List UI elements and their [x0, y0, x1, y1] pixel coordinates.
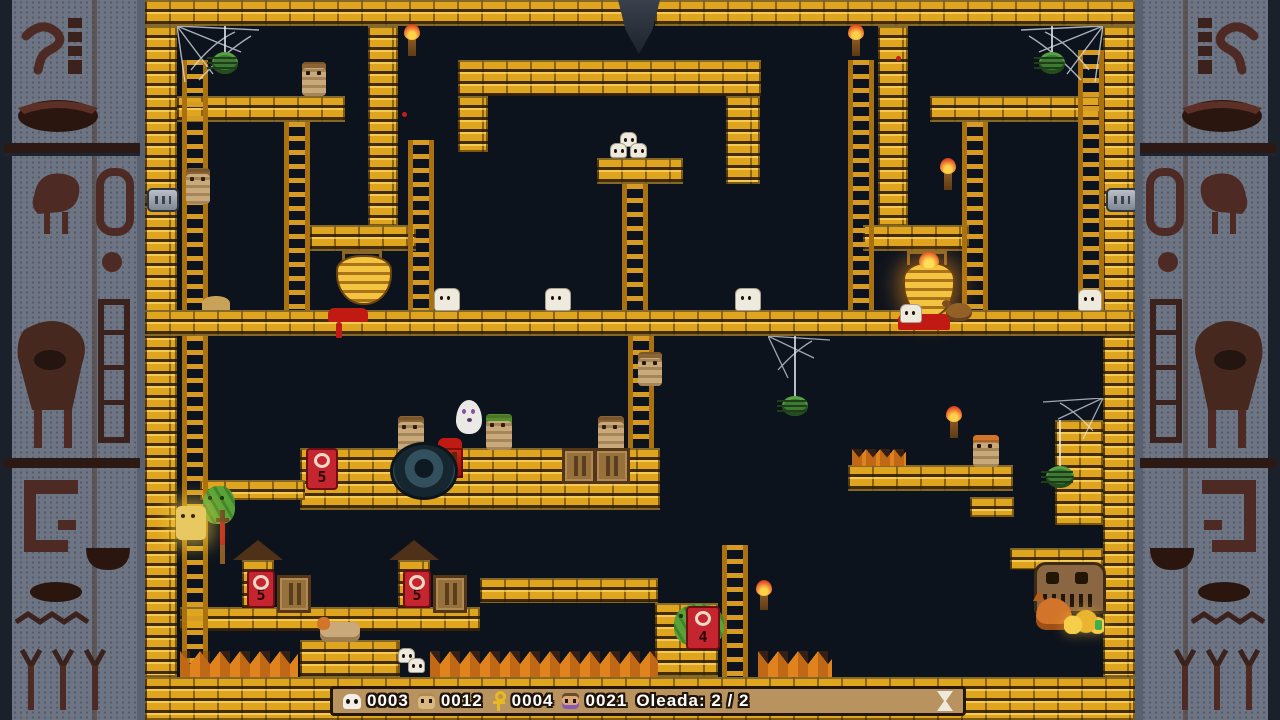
hud-villager-counter: 0021	[562, 691, 627, 711]
web-thread	[1059, 420, 1061, 468]
hieroglyph-border-right	[1135, 0, 1280, 720]
wave-label: Oleada: 2 / 2	[636, 691, 749, 711]
crate	[433, 575, 467, 613]
green-hat-hero	[486, 414, 512, 450]
torch	[944, 172, 952, 190]
villager-icon	[562, 693, 579, 709]
mummy	[638, 352, 662, 386]
skull	[610, 143, 627, 158]
crate	[594, 448, 630, 484]
mummy	[598, 416, 624, 452]
tower-column-right	[878, 26, 908, 226]
ceiling-left	[145, 0, 628, 26]
blood-pool	[328, 308, 368, 322]
wall-lever[interactable]	[147, 188, 179, 212]
spike-trap	[758, 651, 832, 677]
wall-left	[145, 26, 177, 677]
spider	[212, 52, 238, 74]
web-thread	[224, 26, 226, 54]
spider	[1046, 466, 1074, 488]
altar-platform	[597, 158, 683, 184]
wall-right	[1103, 26, 1135, 677]
sword	[220, 522, 225, 564]
skull	[900, 304, 922, 323]
brazier-base-right	[863, 225, 969, 251]
platform-right-mid	[848, 465, 1013, 491]
hourglass-icon	[937, 691, 953, 711]
ghost	[456, 400, 482, 434]
hieroglyph-art	[0, 0, 145, 720]
hieroglyph-art	[1135, 0, 1280, 720]
mummy	[302, 62, 326, 96]
tower-column-left	[368, 26, 398, 226]
ladder	[284, 122, 310, 310]
skull	[1078, 289, 1102, 311]
torch	[852, 38, 860, 56]
padlock-door[interactable]: 5	[306, 448, 338, 490]
hud-bar: 0003 0012 0004 0021 Oleada: 2 / 2	[330, 686, 966, 716]
ladder	[848, 60, 874, 310]
ladder	[1078, 50, 1104, 310]
torch	[760, 594, 768, 610]
glowing-hero	[176, 506, 206, 540]
padlock-door[interactable]: 4	[686, 606, 720, 650]
hieroglyph-border-left	[0, 0, 145, 720]
tower-roof	[233, 540, 283, 560]
blood-dot	[402, 112, 407, 117]
ladder	[622, 184, 648, 310]
skull	[408, 658, 425, 673]
mummy-icon	[418, 693, 435, 709]
blood-dot	[896, 56, 901, 61]
skull-icon	[343, 694, 361, 709]
snake	[946, 303, 972, 321]
hud-ankh-counter: 0004	[492, 691, 554, 711]
crate	[277, 575, 311, 613]
ankh-count: 0004	[512, 691, 554, 711]
skull	[545, 288, 571, 311]
padlock-cost: 5	[412, 588, 421, 603]
padlock-cost: 5	[256, 588, 265, 603]
padlock-cost: 4	[698, 630, 707, 645]
spider-web	[768, 336, 830, 382]
hud-skull-counter: 0003	[343, 691, 409, 711]
web-thread	[1051, 26, 1053, 54]
spike-trap	[430, 651, 658, 677]
wall-lever[interactable]	[1106, 188, 1138, 212]
brazier-base-left	[310, 225, 416, 251]
hud-mummy-counter: 0012	[418, 691, 483, 711]
spike-trap	[180, 651, 298, 677]
block-right-small	[970, 497, 1014, 517]
padlock-door[interactable]: 5	[403, 570, 431, 608]
padlock-cost: 5	[317, 470, 326, 485]
skull	[434, 288, 460, 311]
mummy	[186, 168, 210, 204]
tower-roof	[389, 540, 439, 560]
ladder	[408, 140, 434, 310]
skull	[735, 288, 761, 311]
ladder	[722, 545, 748, 677]
spider	[1039, 52, 1065, 74]
skull	[630, 143, 647, 158]
mummy-count: 0012	[441, 691, 483, 711]
blood-drip	[336, 322, 342, 338]
shield-disc	[390, 442, 458, 500]
game-viewport: 5 5 5 4	[0, 0, 1280, 720]
orange-hat-hero	[973, 435, 999, 467]
sleeping-hero	[320, 622, 360, 642]
central-slab	[458, 60, 761, 96]
spider-web	[1043, 398, 1103, 443]
central-column-left	[458, 96, 488, 152]
ladder	[962, 122, 988, 310]
central-column-right	[726, 96, 760, 184]
sand-pile	[202, 296, 230, 310]
web-thread	[794, 336, 796, 398]
ceiling-gate	[618, 0, 660, 54]
torch	[950, 420, 958, 438]
spider	[782, 396, 808, 416]
sleep-slab	[300, 640, 400, 677]
platform-bottom-center	[480, 578, 658, 603]
padlock-door[interactable]: 5	[247, 570, 275, 608]
villager-count: 0021	[585, 691, 627, 711]
torch	[408, 38, 416, 56]
spike-trap	[852, 449, 906, 466]
treasure-gold	[1064, 606, 1104, 634]
ceiling-right	[655, 0, 1135, 26]
ankh-icon	[492, 691, 506, 711]
skull-count: 0003	[367, 691, 409, 711]
mid-band	[145, 310, 1135, 336]
hanging-brazier	[336, 255, 392, 305]
crate	[562, 448, 596, 484]
